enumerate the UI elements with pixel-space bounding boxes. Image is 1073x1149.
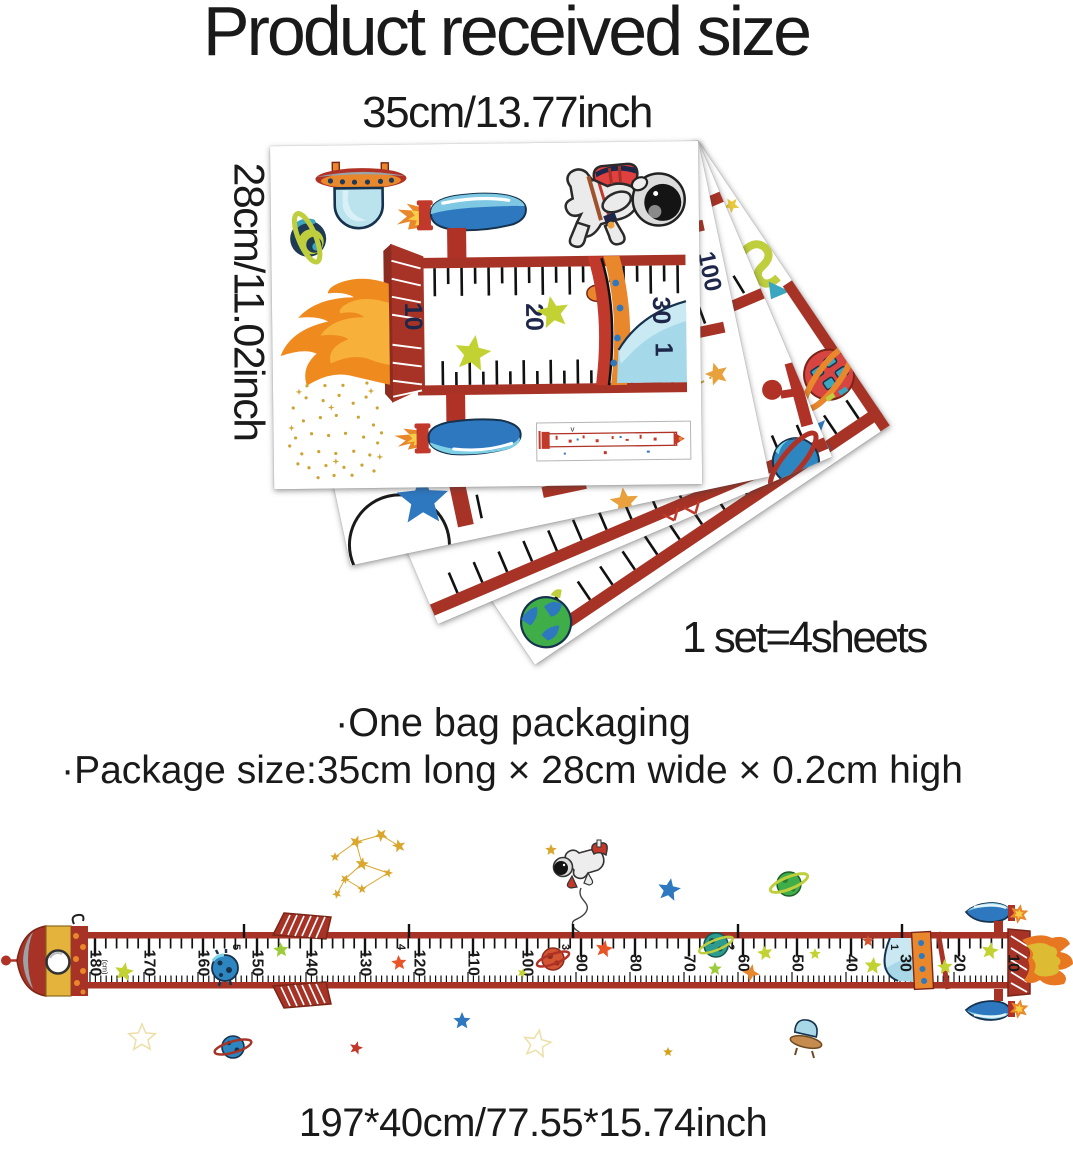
svg-text:140: 140 xyxy=(303,950,320,977)
svg-text:90: 90 xyxy=(573,954,590,972)
svg-text:70: 70 xyxy=(681,954,698,972)
svg-text:20: 20 xyxy=(520,303,548,331)
svg-text:(cm): (cm) xyxy=(101,960,110,975)
svg-text:10: 10 xyxy=(1005,954,1022,972)
svg-text:110: 110 xyxy=(465,950,482,976)
svg-text:40: 40 xyxy=(843,954,860,972)
svg-text:30: 30 xyxy=(897,954,914,972)
svg-text:1: 1 xyxy=(888,944,900,950)
svg-text:130: 130 xyxy=(357,950,374,977)
svg-text:1: 1 xyxy=(649,342,677,356)
svg-text:4: 4 xyxy=(395,944,407,951)
svg-text:v: v xyxy=(570,425,574,434)
svg-text:50: 50 xyxy=(789,954,806,972)
svg-text:3: 3 xyxy=(559,944,571,950)
svg-text:30: 30 xyxy=(647,296,675,324)
svg-text:150: 150 xyxy=(249,950,266,977)
svg-text:20: 20 xyxy=(951,954,968,972)
svg-text:170: 170 xyxy=(141,950,158,977)
svg-text:5: 5 xyxy=(230,944,242,950)
svg-text:160: 160 xyxy=(195,950,212,977)
svg-text:80: 80 xyxy=(627,954,644,972)
svg-text:10: 10 xyxy=(399,302,427,330)
svg-text:60: 60 xyxy=(735,954,752,972)
svg-text:120: 120 xyxy=(411,950,428,977)
